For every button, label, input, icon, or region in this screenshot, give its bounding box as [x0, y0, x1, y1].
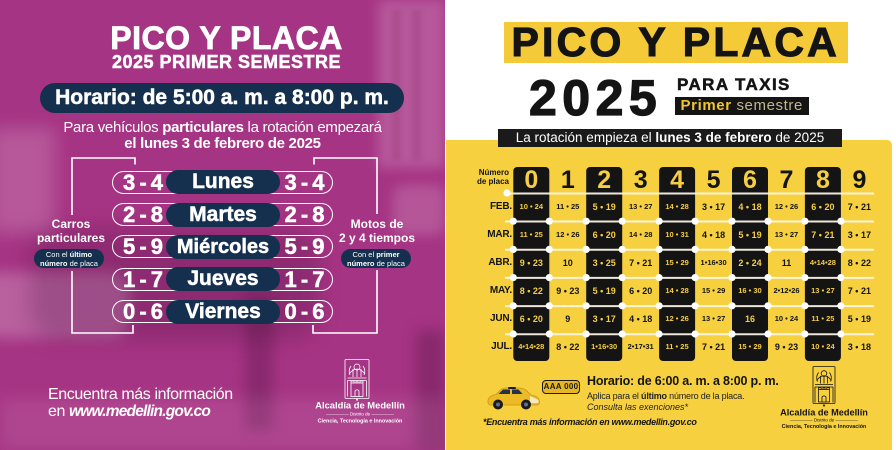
svg-text:————— Distrito de —————: ————— Distrito de ————— [790, 418, 858, 423]
svg-text:Alcaldía de Medellín: Alcaldía de Medellín [315, 400, 405, 411]
svg-text:Ciencia, Tecnología e Innovaci: Ciencia, Tecnología e Innovación [318, 419, 403, 425]
svg-text:Ciencia, Tecnología e Innovaci: Ciencia, Tecnología e Innovación [782, 424, 867, 430]
svg-text:Alcaldía de Medellín: Alcaldía de Medellín [780, 408, 868, 418]
svg-text:————— Distrito de —————: ————— Distrito de ————— [326, 412, 394, 417]
